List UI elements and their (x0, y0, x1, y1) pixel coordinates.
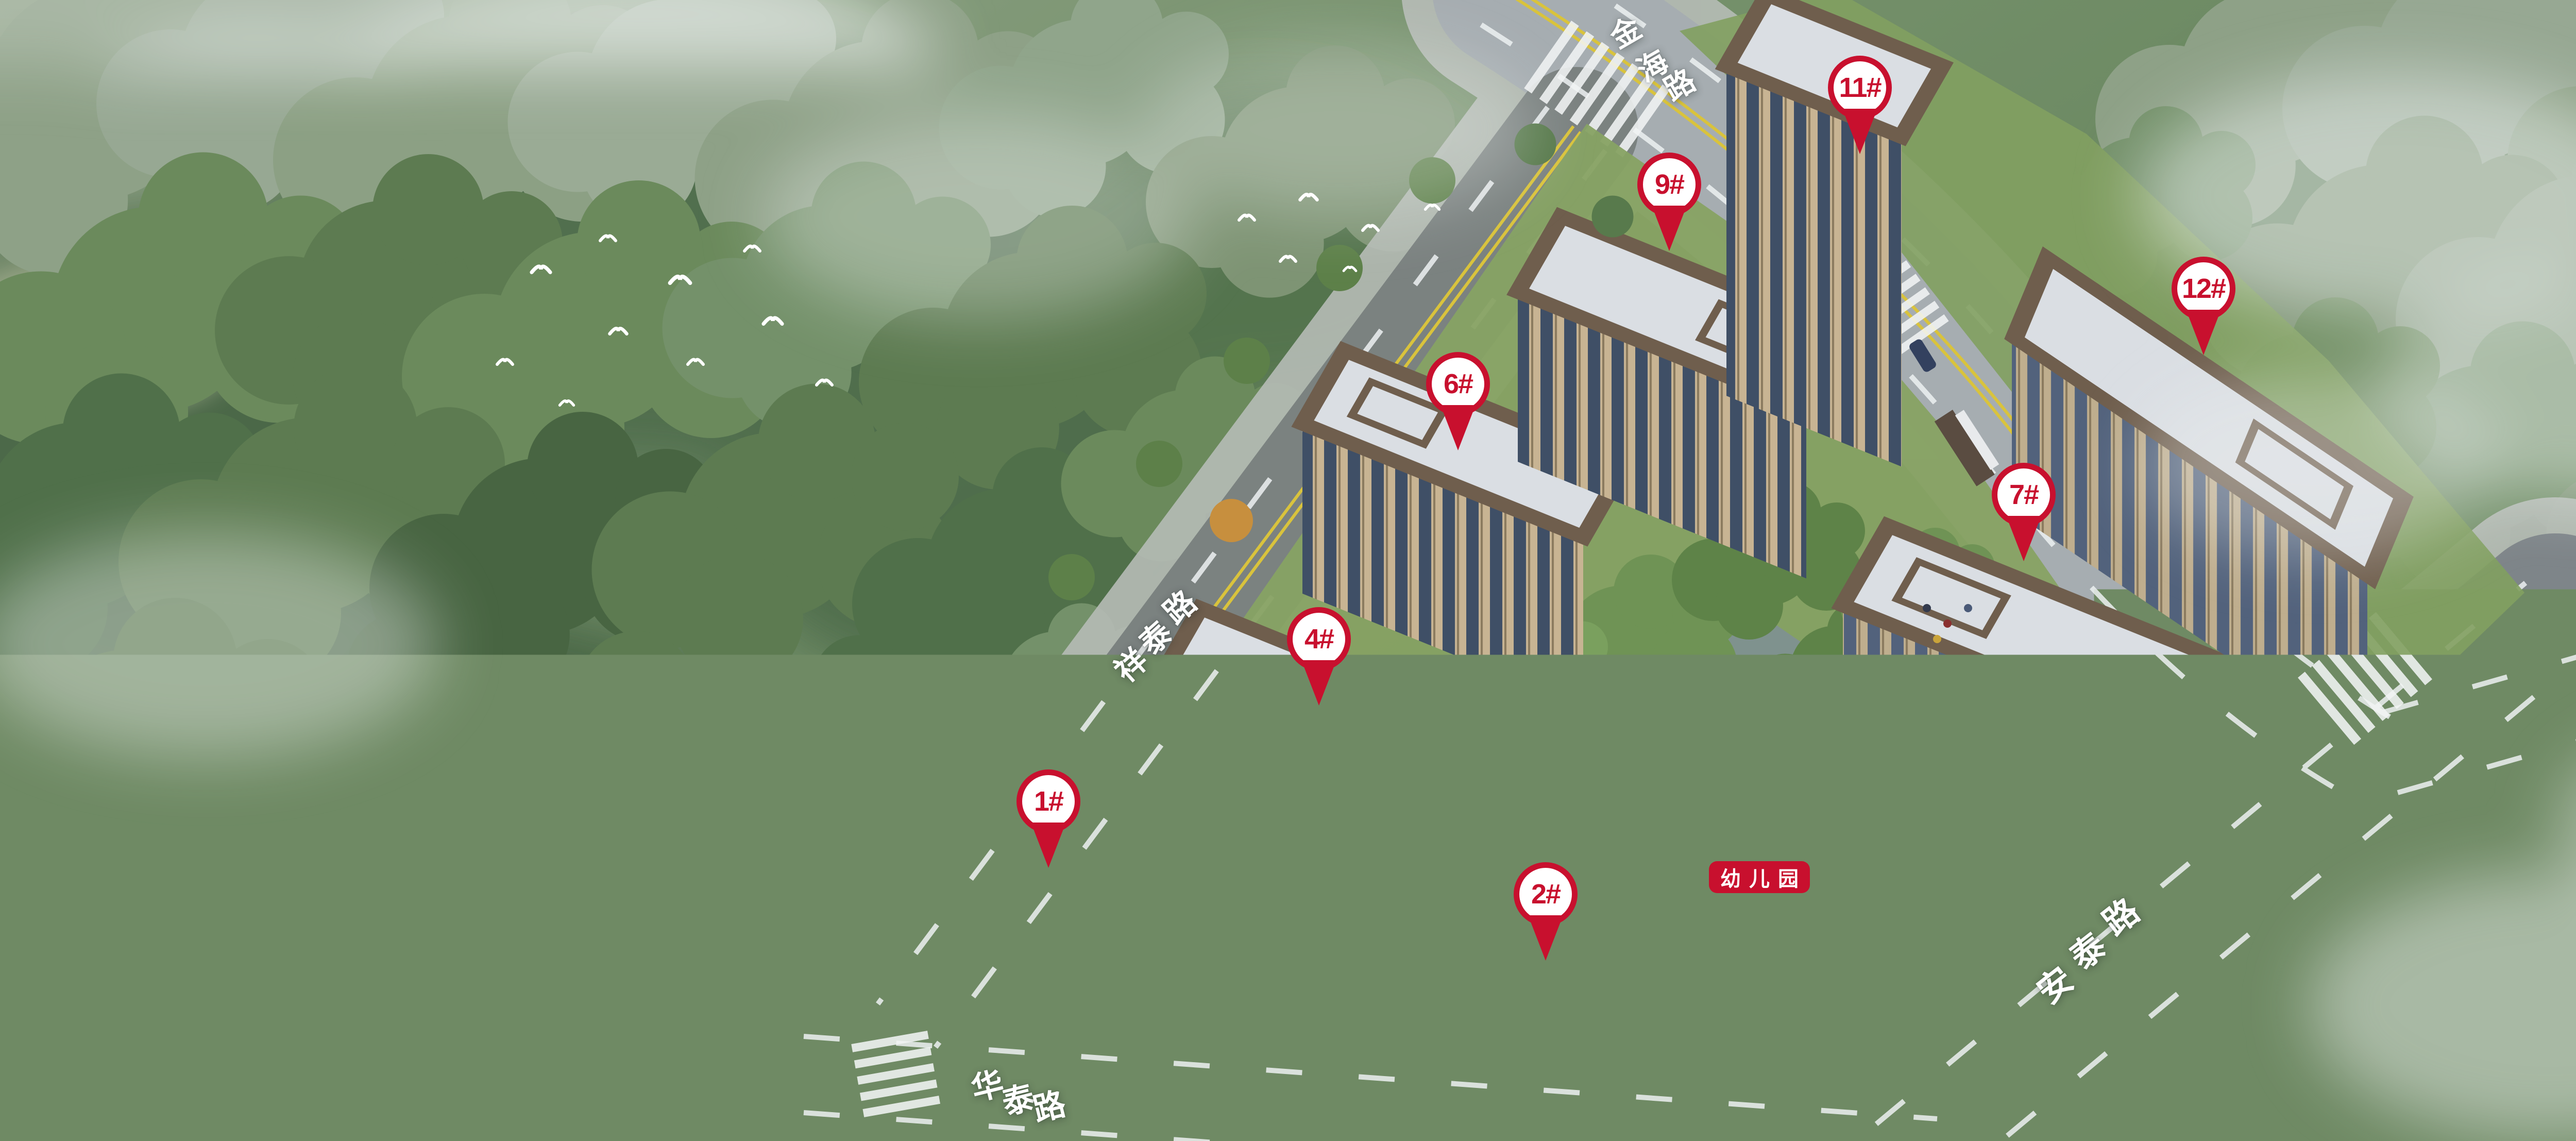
marker-pin-6[interactable]: 6# (1426, 352, 1490, 416)
marker-label: 12# (2182, 275, 2225, 303)
marker-pin-11[interactable]: 11# (1828, 56, 1892, 120)
marker-label: 2# (1531, 880, 1560, 908)
kindergarten-tag[interactable]: 幼儿园 (1709, 861, 1810, 893)
marker-pin-12[interactable]: 12# (2172, 257, 2235, 321)
site-illustration (0, 0, 2576, 1141)
marker-pin-7[interactable]: 7# (1992, 463, 2056, 527)
marker-label: 4# (1304, 625, 1333, 653)
marker-pin-9[interactable]: 9# (1637, 153, 1701, 216)
marker-label: 9# (1655, 171, 1684, 198)
marker-pin-1[interactable]: 1# (1016, 769, 1080, 833)
marker-pin-2[interactable]: 2# (1514, 862, 1578, 926)
marker-label: 1# (1034, 787, 1063, 815)
marker-label: 11# (1839, 74, 1880, 102)
marker-label: 6# (1444, 370, 1472, 398)
aerial-site-rendering: 1# 2# 4# 6# 7# 9# 11# 12# 金海路 祥泰路 华泰路 安泰… (0, 0, 2576, 1141)
marker-label: 7# (2009, 481, 2038, 509)
marker-pin-4[interactable]: 4# (1287, 607, 1351, 671)
